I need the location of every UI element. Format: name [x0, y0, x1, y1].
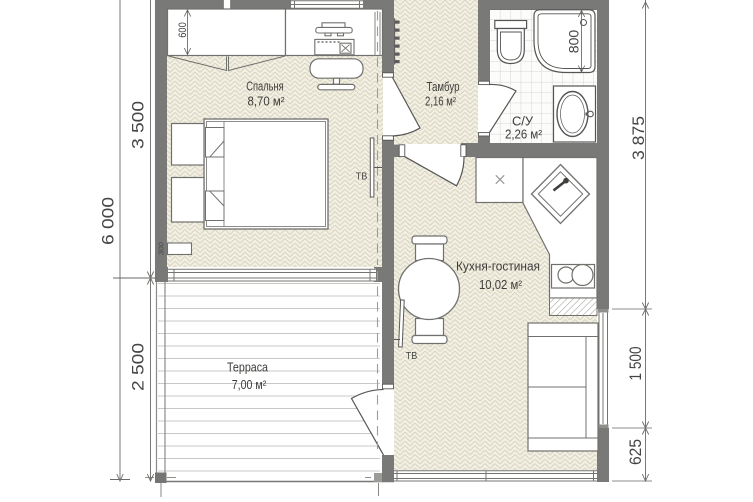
- svg-text:10,02 м²: 10,02 м²: [479, 277, 523, 292]
- svg-text:Терраса: Терраса: [227, 361, 268, 375]
- svg-text:625: 625: [627, 439, 645, 465]
- svg-text:2,16 м²: 2,16 м²: [425, 94, 456, 109]
- svg-text:300: 300: [159, 242, 166, 255]
- svg-text:Тамбур: Тамбур: [427, 79, 460, 94]
- svg-text:7,00 м²: 7,00 м²: [232, 378, 267, 392]
- svg-text:Кухня-гостиная: Кухня-гостиная: [456, 259, 540, 274]
- svg-text:6 000: 6 000: [100, 197, 118, 245]
- svg-text:800: 800: [566, 30, 582, 54]
- svg-text:2,26 м²: 2,26 м²: [505, 127, 543, 142]
- svg-text:ТВ: ТВ: [356, 171, 368, 183]
- svg-text:1 500: 1 500: [627, 347, 645, 381]
- svg-text:3 500: 3 500: [130, 101, 148, 149]
- svg-text:Спальня: Спальня: [246, 79, 284, 94]
- svg-text:8,70 м²: 8,70 м²: [248, 94, 286, 109]
- svg-text:2 500: 2 500: [130, 343, 148, 391]
- svg-text:ТВ: ТВ: [406, 350, 418, 362]
- svg-text:3 875: 3 875: [630, 116, 648, 160]
- svg-text:600: 600: [177, 22, 189, 38]
